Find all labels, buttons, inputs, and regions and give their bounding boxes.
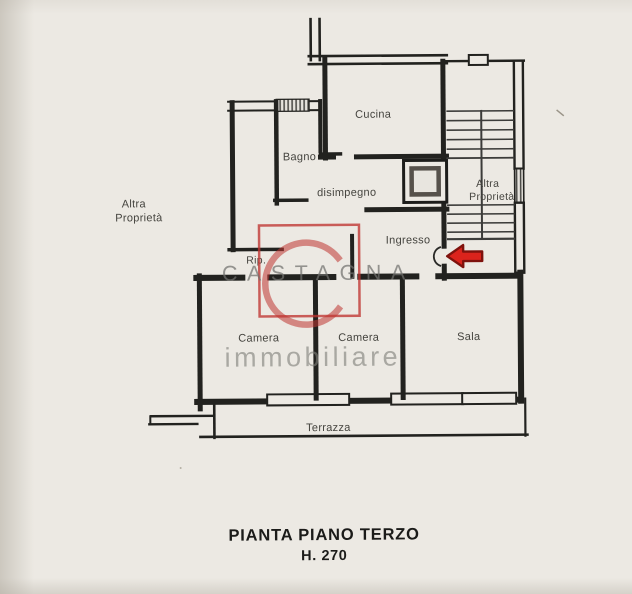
label-altra-proprieta-stairs-2: Proprietà [469,191,514,203]
window-stairwell-right-hatched [515,169,524,203]
agency-watermark: CASTAGNA immobiliare [222,224,416,372]
paper-speck [557,110,563,115]
watermark-brand-text: CASTAGNA [222,260,415,285]
wall-camera1-left [199,276,200,409]
plan-drawing: Altra Proprietà Cucina Bagno disimpegno … [114,17,566,565]
label-disimpegno: disimpegno [317,187,376,199]
label-terrazza: Terrazza [306,422,351,434]
window-camera [267,394,349,406]
label-altra-proprieta-left-2: Proprietà [115,212,163,224]
plan-height-note: H. 270 [301,548,347,564]
label-altra-proprieta-left-1: Altra [122,198,147,210]
entrance-door-swing [434,247,441,266]
caption: PIANTA PIANO TERZO H. 270 [228,525,420,564]
wall-cucina-top-outer [309,55,447,56]
label-cucina: Cucina [355,109,392,121]
window-sala [462,393,516,404]
paper-speck [180,467,182,469]
wall-middle-seg4 [438,276,519,277]
window-stairwell-top [469,55,488,65]
wall-left-outer [232,103,233,250]
scanned-floor-plan-page: Altra Proprietà Cucina Bagno disimpegno … [0,0,632,594]
wall-stairwell-left [443,61,444,246]
stair-center-rail [481,111,482,239]
wall-stairwell-right-lower [515,203,524,273]
wall-terrace-bottom [200,435,527,437]
label-ingresso: Ingresso [386,234,431,246]
wall-camera-divider [315,277,316,398]
label-altra-proprieta-stairs-1: Altra [476,178,499,190]
wall-cucina-left [325,58,326,158]
staircase [447,111,514,239]
wall-sala-right [520,273,521,401]
label-sala: Sala [457,331,481,343]
wall-cucina-bottom-b [356,156,446,157]
window-bagno-hatched [276,99,309,111]
wall-bagno-left [276,101,277,203]
elevator-inner [412,168,439,194]
elevator-shaft [404,160,447,202]
wall-cucina-top-inner [309,63,447,64]
wall-camera2-sala-divider [402,276,403,397]
wall-stairwell-right-upper [514,61,524,169]
floor-plan-svg: Altra Proprietà Cucina Bagno disimpegno … [0,0,632,594]
wall-ingresso-top [367,209,447,210]
watermark-tagline-text: immobiliare [225,342,402,373]
plan-title: PIANTA PIANO TERZO [228,525,419,544]
entrance-arrow-icon [447,245,482,267]
label-bagno: Bagno [283,151,316,163]
walls [147,18,528,439]
